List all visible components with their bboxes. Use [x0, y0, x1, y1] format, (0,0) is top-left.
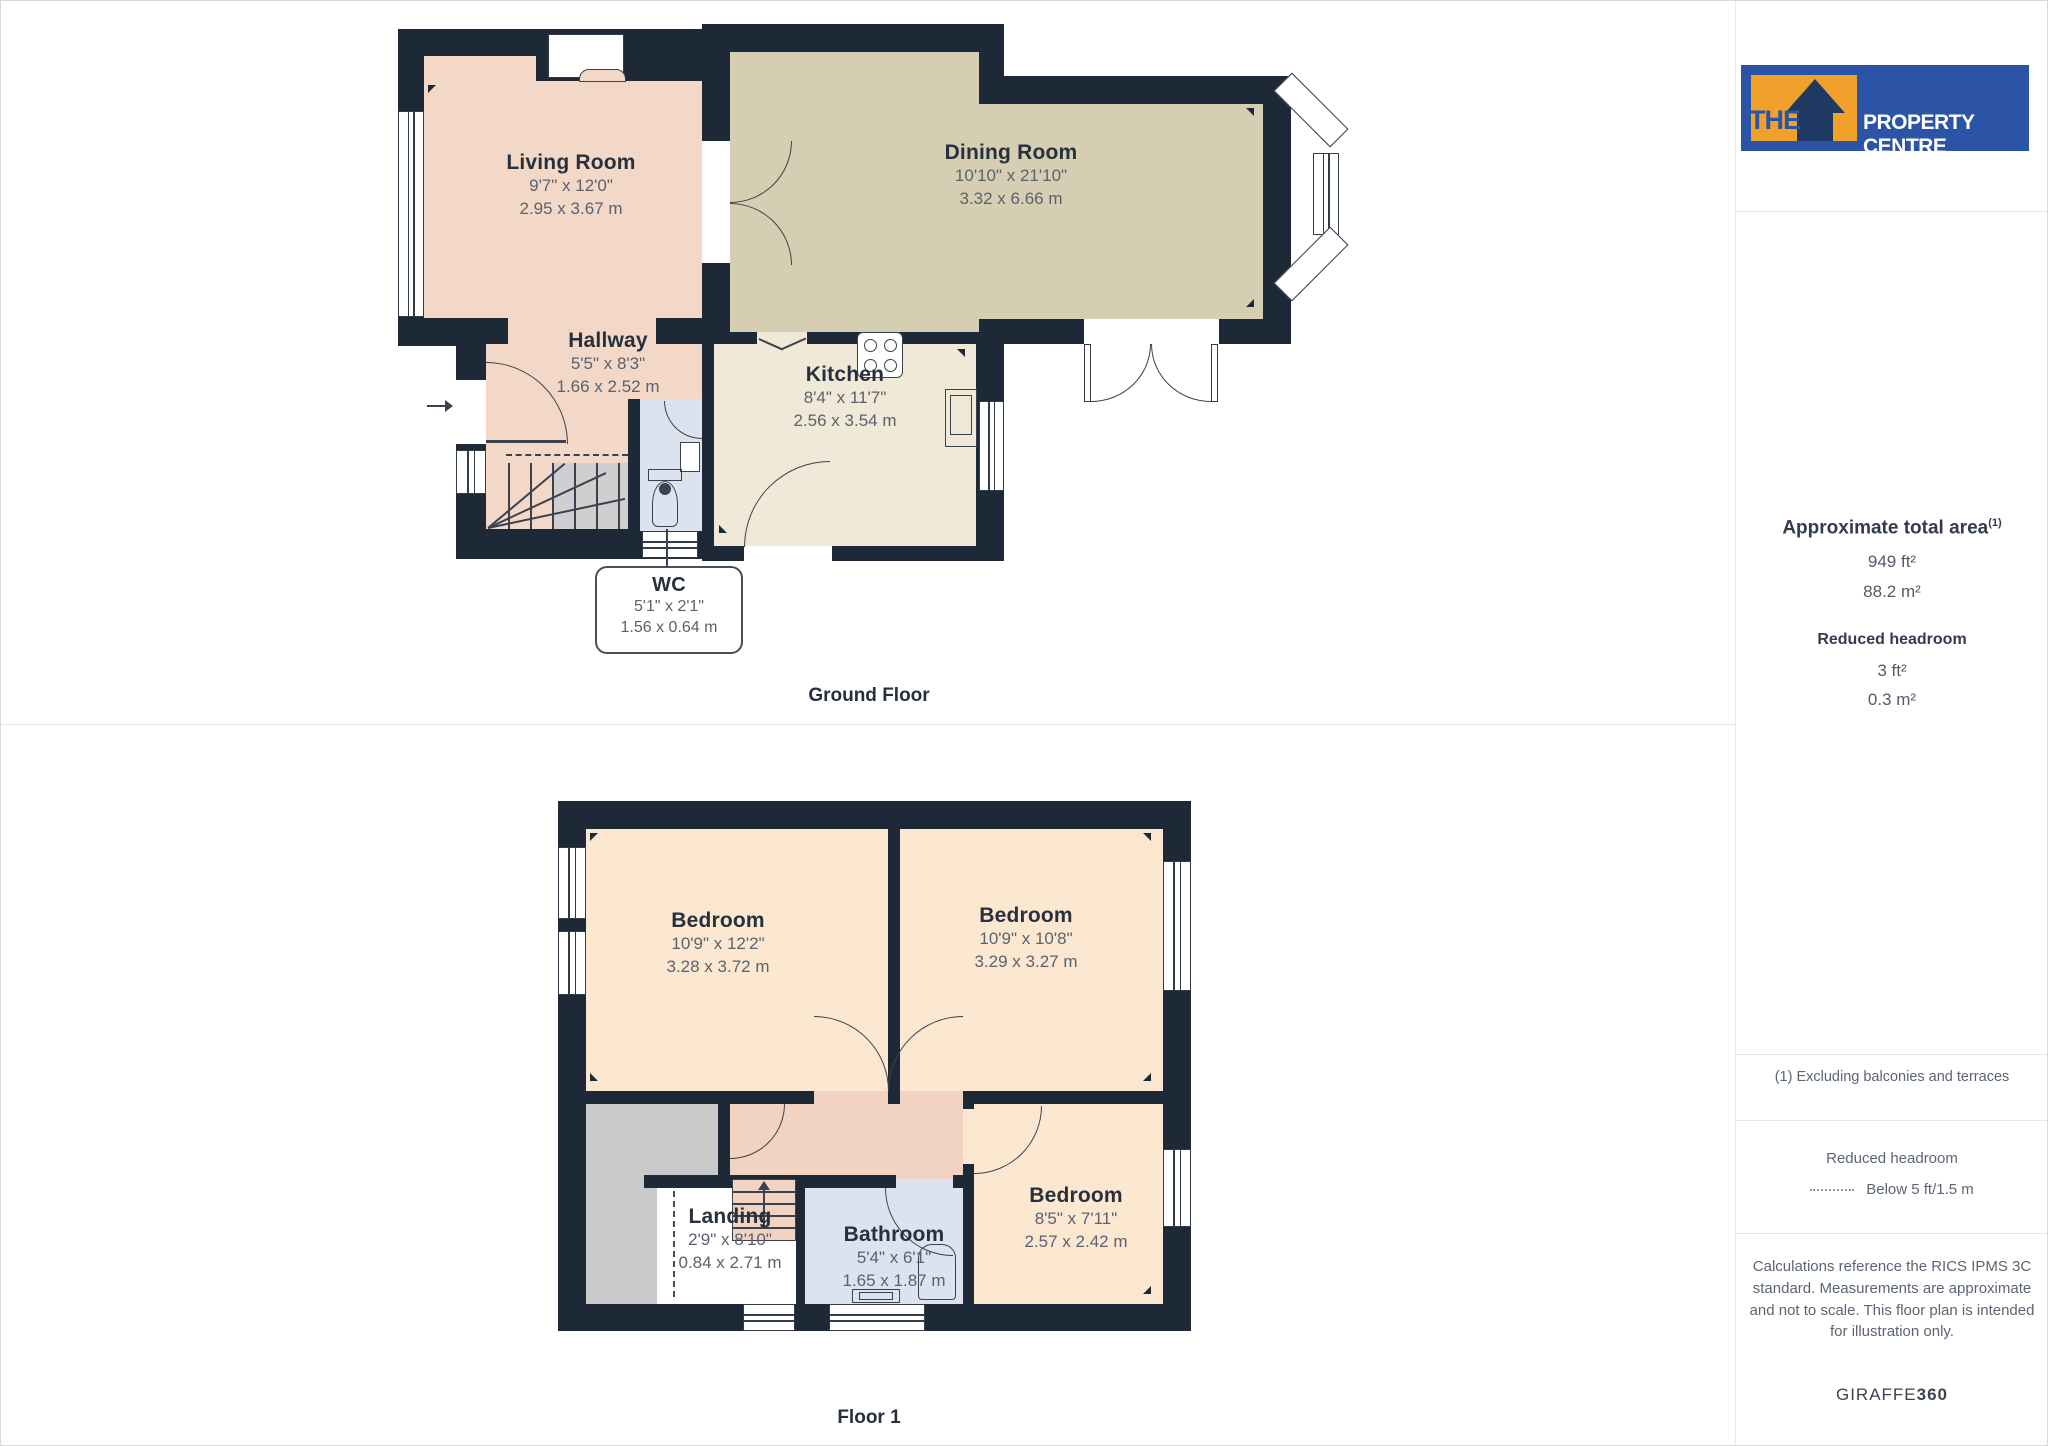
entry-arrow-icon	[445, 400, 453, 412]
window	[979, 401, 1004, 491]
hearth	[579, 69, 626, 82]
corner-arrow-icon	[957, 349, 965, 357]
reduced-headroom-ft: 3 ft²	[1745, 661, 2039, 681]
sidebar-divider	[1735, 1054, 2048, 1055]
room-dim-imperial: 5'5" x 8'3"	[488, 353, 728, 376]
window	[829, 1304, 925, 1331]
door-leaf	[1084, 344, 1091, 402]
footnote: (1) Excluding balconies and terraces	[1745, 1069, 2039, 1085]
hob-burner	[884, 339, 897, 352]
room-dim-metric: 2.56 x 3.54 m	[725, 410, 965, 433]
wall-segment	[718, 1103, 730, 1179]
room-label-bedroom-2: Bedroom 10'9" x 10'8" 3.29 x 3.27 m	[906, 904, 1146, 974]
door-opening	[456, 380, 486, 444]
corner-arrow-icon	[428, 85, 436, 93]
window	[398, 111, 424, 317]
wc-callout: WC 5'1" x 2'1" 1.56 x 0.64 m	[595, 566, 743, 654]
corner-arrow-icon	[590, 833, 598, 841]
hob-burner	[864, 339, 877, 352]
room-label-bedroom-3: Bedroom 8'5" x 7'11" 2.57 x 2.42 m	[956, 1184, 1196, 1254]
door-threshold	[963, 1109, 974, 1164]
room-dim-imperial: 10'10" x 21'10"	[891, 165, 1131, 188]
stair-step	[618, 463, 620, 529]
door-threshold	[814, 1091, 888, 1104]
stair-dashed-line	[506, 454, 628, 456]
room-label-kitchen: Kitchen 8'4" x 11'7" 2.56 x 3.54 m	[725, 363, 965, 433]
property-centre-logo: THE PROPERTY CENTRE	[1741, 65, 2029, 151]
wall-segment	[989, 319, 1084, 344]
door-threshold	[900, 1091, 963, 1104]
total-area-heading: Approximate total area(1)	[1745, 517, 2039, 539]
room-label-hallway: Hallway 5'5" x 8'3" 1.66 x 2.52 m	[488, 329, 728, 399]
room-label-dining-room: Dining Room 10'10" x 21'10" 3.32 x 6.66 …	[891, 141, 1131, 211]
credit-name: GIRAFFE	[1836, 1385, 1917, 1404]
stair-step	[596, 463, 598, 529]
corner-arrow-icon	[719, 525, 727, 533]
window	[456, 450, 486, 494]
legend-row: Below 5 ft/1.5 m	[1745, 1181, 2039, 1198]
wall-segment	[1219, 319, 1291, 344]
room-name: Hallway	[488, 329, 728, 353]
room-name: Kitchen	[725, 363, 965, 387]
room-name: WC	[597, 574, 741, 597]
legend-title: Reduced headroom	[1745, 1150, 2039, 1167]
wall-segment	[796, 1175, 896, 1188]
window	[558, 931, 586, 995]
room-dim-metric: 3.29 x 3.27 m	[906, 951, 1146, 974]
floor-label-ground: Ground Floor	[769, 685, 969, 707]
room-name: Dining Room	[891, 141, 1131, 165]
room-dim-imperial: 10'9" x 12'2"	[598, 933, 838, 956]
window	[558, 847, 586, 919]
room-dim-metric: 3.28 x 3.72 m	[598, 956, 838, 979]
room-dim-imperial: 8'4" x 11'7"	[725, 387, 965, 410]
info-sidebar: Approximate total area(1) 949 ft² 88.2 m…	[1735, 1, 2048, 1446]
room-name: Living Room	[451, 151, 691, 175]
stair-step	[574, 463, 576, 529]
credit: GIRAFFE360	[1745, 1385, 2039, 1405]
wc-leader-line	[666, 529, 668, 566]
corner-arrow-icon	[1246, 108, 1254, 116]
room-name: Bedroom	[598, 909, 838, 933]
sidebar-divider	[1735, 1120, 2048, 1121]
total-area-ft: 949 ft²	[1745, 552, 2039, 572]
wc-sink	[680, 442, 700, 472]
logo-text-the: THE	[1749, 105, 1800, 136]
window	[1163, 861, 1191, 991]
window	[743, 1304, 795, 1331]
corner-arrow-icon	[1143, 1286, 1151, 1294]
legend-value: Below 5 ft/1.5 m	[1866, 1181, 1974, 1198]
room-label-living-room: Living Room 9'7" x 12'0" 2.95 x 3.67 m	[451, 151, 691, 221]
sidebar-divider	[1735, 1233, 2048, 1234]
room-dim-metric: 3.32 x 6.66 m	[891, 188, 1131, 211]
room-dim-metric: 2.95 x 3.67 m	[451, 198, 691, 221]
room-dim-metric: 1.66 x 2.52 m	[488, 376, 728, 399]
stair-up-arrow-icon	[758, 1181, 770, 1190]
reduced-headroom-heading: Reduced headroom	[1745, 631, 2039, 649]
corner-arrow-icon	[1143, 1073, 1151, 1081]
total-area-m: 88.2 m²	[1745, 582, 2039, 602]
corner-arrow-icon	[590, 1073, 598, 1081]
room-dining-room	[979, 104, 1263, 319]
room-dim-metric: 1.65 x 1.87 m	[784, 1270, 1004, 1293]
logo-text-property-centre: PROPERTY CENTRE	[1863, 111, 2029, 159]
door-opening	[702, 141, 730, 263]
total-area-footnote-marker: (1)	[1988, 517, 2001, 529]
section-divider	[1, 724, 1735, 725]
entry-arrow-icon	[427, 405, 447, 407]
room-label-bedroom-1: Bedroom 10'9" x 12'2" 3.28 x 3.72 m	[598, 909, 838, 979]
room-dim-metric: 1.56 x 0.64 m	[597, 618, 741, 639]
door-opening	[744, 546, 832, 561]
room-name: Bedroom	[956, 1184, 1196, 1208]
reduced-headroom-m: 0.3 m²	[1745, 690, 2039, 710]
door-arc	[1091, 344, 1151, 402]
room-dim-imperial: 8'5" x 7'11"	[956, 1208, 1196, 1231]
floorplan-page: WC 5'1" x 2'1" 1.56 x 0.64 m Living Room…	[0, 0, 2048, 1446]
wall-segment	[586, 1091, 814, 1104]
door-leaf	[1211, 344, 1218, 402]
credit-suffix: 360	[1917, 1385, 1948, 1404]
floor-label-floor-1: Floor 1	[769, 1407, 969, 1429]
dotted-line-icon	[1810, 1189, 1854, 1191]
total-area-label: Approximate total area	[1782, 517, 1988, 538]
sidebar-divider	[1735, 211, 2048, 212]
corner-arrow-icon	[1143, 833, 1151, 841]
room-dim-metric: 2.57 x 2.42 m	[956, 1231, 1196, 1254]
door-arc	[1151, 344, 1211, 402]
logo-house-body-icon	[1797, 111, 1833, 141]
toilet-tank	[648, 469, 682, 481]
wall-segment	[628, 399, 640, 531]
room-dim-imperial: 9'7" x 12'0"	[451, 175, 691, 198]
toilet-flush	[659, 483, 671, 495]
bathroom-sink-basin	[859, 1292, 893, 1300]
corner-arrow-icon	[1246, 299, 1254, 307]
stairs	[554, 463, 628, 529]
room-name: Bedroom	[906, 904, 1146, 928]
room-dim-imperial: 10'9" x 10'8"	[906, 928, 1146, 951]
disclaimer-text: Calculations reference the RICS IPMS 3C …	[1742, 1256, 2042, 1343]
room-dim-imperial: 5'1" x 2'1"	[597, 597, 741, 618]
bay-window	[1313, 153, 1339, 235]
window	[642, 531, 698, 558]
sidebar-border	[1735, 1, 1736, 1446]
wall-segment	[963, 1091, 1163, 1104]
